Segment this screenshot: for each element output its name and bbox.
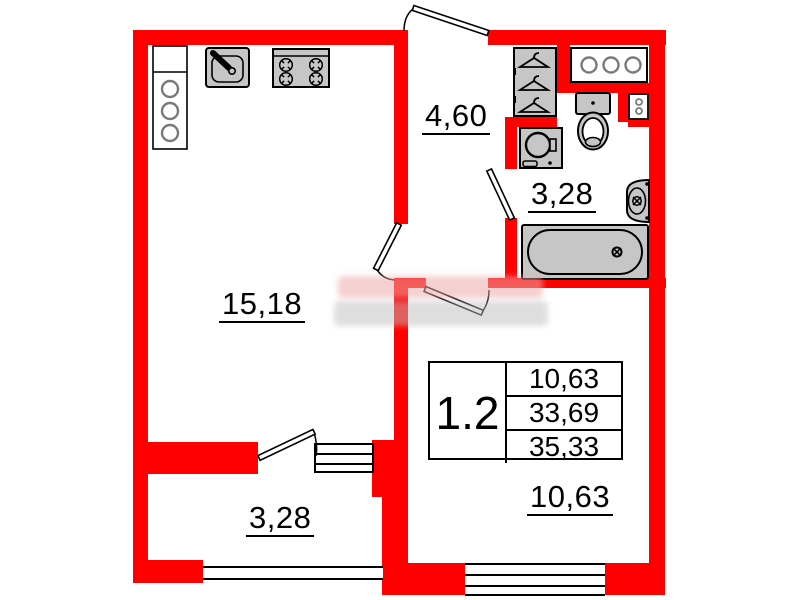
living-room-area-label: 15,18 — [219, 288, 305, 323]
living-room-bottom-wall — [135, 442, 258, 474]
unit-number: 1.2 — [430, 363, 507, 463]
bathroom-left-wall-upper — [505, 117, 517, 169]
balcony-pier — [372, 440, 408, 497]
area-row-3: 35,33 — [507, 431, 621, 463]
bedroom-door — [424, 287, 489, 316]
ventilation-shaft-icon — [152, 45, 188, 155]
utility-shaft-icon — [570, 47, 648, 88]
meter-box-icon — [628, 93, 649, 125]
toilet-niche-divider — [618, 92, 628, 122]
washbasin-icon — [621, 178, 651, 229]
balcony-foot-wall — [133, 560, 203, 583]
balcony-railing — [203, 566, 383, 580]
balcony-door-window — [314, 443, 374, 473]
outer-wall-left — [133, 30, 148, 583]
balcony-area-label: 3,28 — [246, 502, 314, 537]
bathroom-left-wall-lower — [505, 218, 517, 288]
partition-living-hall — [394, 43, 408, 224]
bathtub-icon — [521, 224, 649, 285]
floor-plan: 15,18 4,60 3,28 10,63 3,28 1.2 10,63 33,… — [0, 0, 800, 600]
right-foot-wall — [605, 563, 665, 595]
partition-living-bedroom — [394, 288, 408, 442]
entrance-door — [404, 5, 489, 35]
stove-icon — [272, 48, 330, 93]
window-mullion — [316, 453, 372, 455]
area-row-1: 10,63 — [507, 363, 621, 397]
watermark-line-2 — [334, 301, 548, 326]
outer-wall-top-left — [133, 30, 408, 45]
apartment-info-table: 1.2 10,63 33,69 35,33 — [428, 361, 623, 460]
kitchen-sink-icon — [205, 47, 250, 93]
outer-wall-top-right — [488, 30, 666, 45]
bedroom-window — [465, 563, 605, 596]
washing-machine-icon — [519, 127, 563, 174]
window-mullion — [465, 585, 605, 587]
balcony-door — [258, 429, 317, 460]
living-room-door — [374, 223, 402, 280]
bathroom-door — [487, 169, 515, 220]
area-row-2: 33,69 — [507, 397, 621, 431]
bedroom-top-wall-stub — [394, 278, 426, 288]
balcony-bedroom-wall — [382, 497, 408, 565]
window-mullion — [465, 574, 605, 576]
window-mullion — [316, 463, 372, 465]
bedroom-area-label: 10,63 — [527, 481, 613, 516]
bathroom-area-label: 3,28 — [528, 178, 596, 213]
wardrobe-icon — [513, 47, 557, 122]
outer-wall-right — [649, 30, 665, 595]
hallway-area-label: 4,60 — [422, 100, 490, 135]
bedroom-foot-wall — [382, 563, 465, 595]
toilet-icon — [575, 92, 611, 156]
